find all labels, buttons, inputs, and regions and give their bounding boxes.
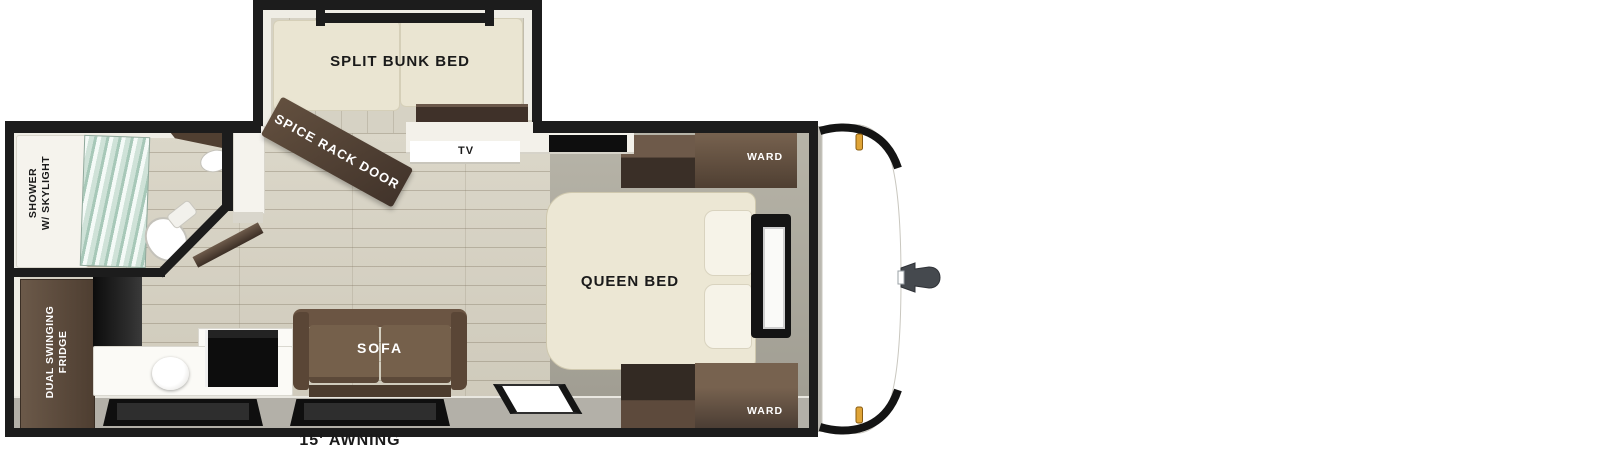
front-window-glass — [763, 227, 785, 329]
pillow-bottom — [704, 284, 752, 349]
shower-label-line1: SHOWER — [27, 128, 40, 258]
sofa-skirt — [309, 385, 451, 397]
bathroom-wall-right — [222, 129, 233, 211]
sofa-label: SOFA — [310, 340, 450, 357]
stove — [205, 330, 278, 387]
window-kitchen-pane — [117, 403, 249, 420]
sofa-armrest-right — [451, 312, 467, 390]
bathroom-wall-bottom — [5, 268, 165, 277]
window-kitchen — [103, 399, 263, 426]
wall-top-right — [533, 121, 818, 133]
marker-light-bottom — [856, 407, 863, 423]
wardrobe-bottom — [695, 363, 798, 433]
bedside-cabinet-bottom — [621, 364, 695, 433]
linen-cabinet — [233, 126, 265, 214]
roof-vent — [549, 135, 627, 152]
fridge-label-line1: DUAL SWINGING — [44, 280, 57, 424]
bunk-wall-face-left — [263, 10, 271, 133]
linen-cabinet-face — [233, 212, 263, 223]
wardrobe-top-label: WARD — [715, 151, 815, 164]
fridge-label-line2: FRIDGE — [57, 280, 70, 424]
hitch-jack-slot — [898, 271, 904, 284]
window-sofa — [290, 399, 450, 426]
window-sofa-pane — [304, 403, 436, 420]
tv-label: TV — [413, 145, 519, 158]
queen-bed-label: QUEEN BED — [540, 273, 720, 291]
floorplan-canvas: SPLIT BUNK BED SHOWER W/ SKYLIGHT SPICE … — [0, 0, 1600, 453]
sofa-armrest-left — [293, 312, 309, 390]
awning-label: 15' AWNING — [230, 431, 470, 450]
front-cap-body — [822, 125, 901, 434]
wall-left — [5, 121, 14, 437]
shower-glass-door — [80, 135, 151, 268]
kitchen-sink — [152, 357, 189, 390]
pillow-top — [704, 210, 752, 276]
shower-label-line2: W/ SKYLIGHT — [40, 128, 53, 258]
shower-label: SHOWER W/ SKYLIGHT — [27, 128, 53, 258]
bunk-window — [320, 13, 488, 23]
bunk-window-end-right — [485, 10, 494, 26]
bunk-bed-label: SPLIT BUNK BED — [300, 53, 500, 71]
fridge-label: DUAL SWINGING FRIDGE — [44, 280, 70, 424]
wardrobe-bottom-label: WARD — [715, 405, 815, 418]
front-cap — [810, 112, 950, 448]
marker-light-top — [856, 134, 863, 150]
bunk-window-end-left — [316, 10, 325, 26]
hitch-coupler — [901, 263, 940, 292]
